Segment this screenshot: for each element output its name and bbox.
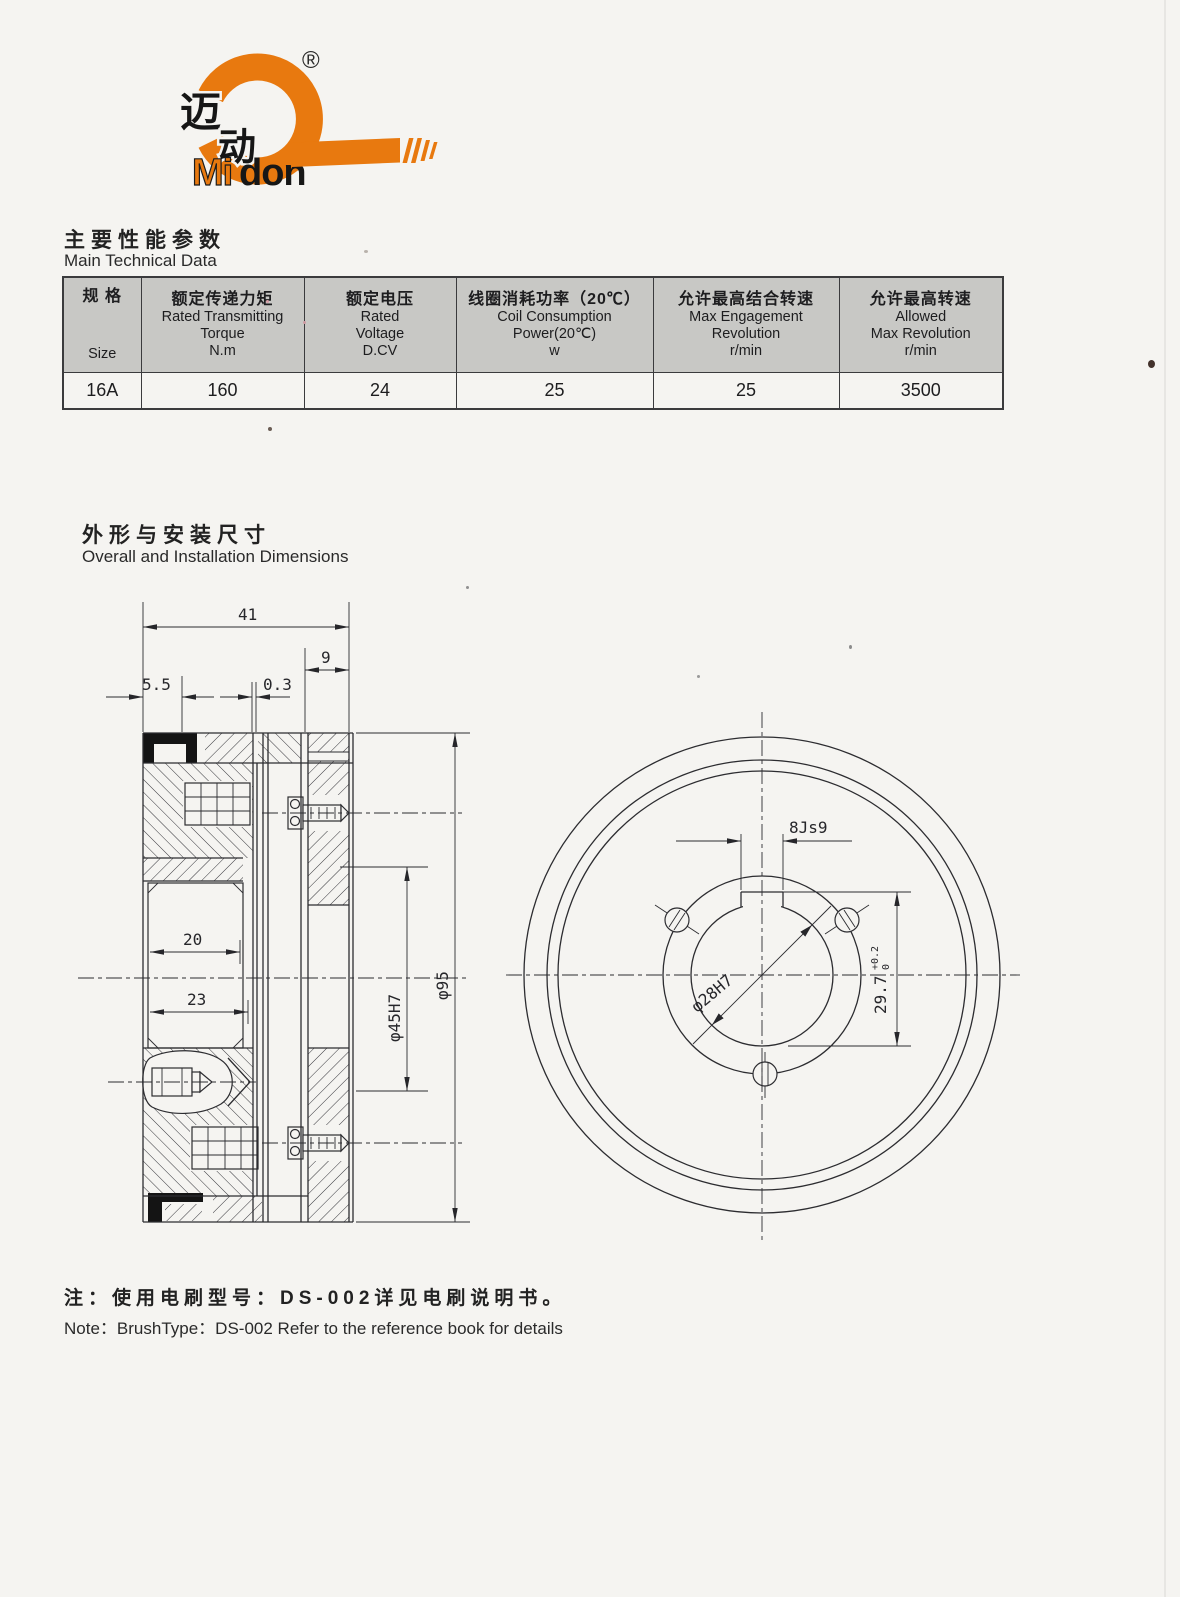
seal-top — [143, 733, 197, 763]
coil-section-bottom — [190, 1125, 260, 1171]
cell-engagement: 25 — [653, 373, 839, 410]
col-power-zh: 线圈消耗功率（20℃） — [459, 290, 651, 309]
set-screw-upper-left — [655, 905, 699, 934]
col-voltage-en1: Rated — [307, 309, 454, 326]
tech-data-title-zh: 主要性能参数 — [64, 224, 226, 254]
scan-speck — [303, 321, 306, 324]
col-voltage-unit: D.CV — [307, 343, 454, 360]
dim-8js9: 8Js9 — [676, 818, 852, 890]
dim-95: φ95 — [356, 733, 470, 1222]
hub-bore-window — [148, 883, 243, 1048]
tech-data-title-en: Main Technical Data — [64, 251, 217, 271]
cross-section-view: 41 9 5.5 0.3 — [78, 602, 470, 1222]
col-header-power: 线圈消耗功率（20℃） Coil Consumption Power(20℃) … — [456, 277, 653, 373]
set-screw-upper-right — [825, 905, 869, 934]
scan-speck — [266, 300, 269, 303]
scan-speck — [849, 645, 852, 649]
cell-torque: 160 — [141, 373, 304, 410]
col-max-zh: 允许最高转速 — [842, 290, 1001, 309]
scan-speck — [1148, 360, 1155, 368]
svg-text:23: 23 — [187, 990, 206, 1009]
set-screw-bottom — [753, 1052, 777, 1098]
dimension-drawings: 41 9 5.5 0.3 — [0, 560, 1180, 1290]
dim-5-5: 5.5 — [106, 675, 214, 732]
col-header-size: 规 格 Size — [63, 277, 141, 373]
dimensions-title-zh: 外形与安装尺寸 — [82, 519, 271, 549]
logo-stripe-icon — [429, 142, 438, 159]
col-power-en1: Coil Consumption — [459, 309, 651, 326]
seal-bottom — [148, 1193, 203, 1222]
col-size-en: Size — [66, 346, 139, 363]
col-header-torque: 额定传递力矩 Rated Transmitting Torque N.m — [141, 277, 304, 373]
logo-bar — [292, 138, 400, 167]
svg-text:29.7: 29.7 — [871, 975, 890, 1014]
midon-logo: ® 迈 动 Mi don — [82, 34, 452, 209]
col-max-unit: r/min — [842, 343, 1001, 360]
logo-stripe-icon — [403, 138, 414, 163]
coil-section-top — [183, 781, 252, 827]
logo-stripe-icon — [411, 138, 422, 163]
logo-chinese-char-1: 迈 — [180, 89, 221, 135]
front-view: 8Js9 29.7 +0.2 0 φ28H7 — [506, 712, 1020, 1240]
note-en: Note：BrushType：DS-002 Refer to the refer… — [64, 1314, 563, 1339]
dim-41: 41 — [143, 602, 349, 732]
col-torque-en1: Rated Transmitting — [144, 309, 302, 326]
col-header-engagement: 允许最高结合转速 Max Engagement Revolution r/min — [653, 277, 839, 373]
col-power-unit: w — [459, 343, 651, 360]
col-torque-en2: Torque — [144, 326, 302, 343]
cell-voltage: 24 — [304, 373, 456, 410]
col-size-zh: 规 格 — [66, 287, 139, 306]
dim-0-3: 0.3 — [220, 675, 292, 732]
scan-speck — [268, 427, 272, 431]
col-power-en2: Power(20℃) — [459, 326, 651, 343]
svg-text:41: 41 — [238, 605, 257, 624]
table-data-row: 16A 160 24 25 25 3500 — [63, 373, 1003, 410]
logo-brand-mi: Mi — [192, 152, 232, 194]
col-engage-en1: Max Engagement — [656, 309, 837, 326]
col-max-en1: Allowed — [842, 309, 1001, 326]
scan-speck — [466, 586, 469, 589]
scan-speck — [364, 250, 368, 253]
col-voltage-zh: 额定电压 — [307, 290, 454, 309]
col-header-max-revolution: 允许最高转速 Allowed Max Revolution r/min — [839, 277, 1003, 373]
svg-text:φ95: φ95 — [433, 971, 452, 1000]
col-voltage-en2: Voltage — [307, 326, 454, 343]
note-zh: 注：使用电刷型号：DS-002详见电刷说明书。 — [64, 1283, 566, 1310]
cell-power: 25 — [456, 373, 653, 410]
svg-text:+0.2: +0.2 — [870, 946, 881, 970]
col-max-en2: Max Revolution — [842, 326, 1001, 343]
cell-size: 16A — [63, 373, 141, 410]
datasheet-page: ® 迈 动 Mi don 主要性能参数 Main Technical Data … — [0, 0, 1180, 1597]
scan-speck — [697, 675, 700, 678]
logo-stripe-icon — [421, 140, 431, 161]
dim-9: 9 — [305, 648, 349, 732]
col-engage-zh: 允许最高结合转速 — [656, 290, 837, 309]
col-engage-en2: Revolution — [656, 326, 837, 343]
col-torque-unit: N.m — [144, 343, 302, 360]
dim-29-7: 29.7 +0.2 0 — [744, 892, 911, 1046]
svg-text:9: 9 — [321, 648, 331, 667]
svg-text:8Js9: 8Js9 — [789, 818, 828, 837]
col-torque-zh: 额定传递力矩 — [144, 290, 302, 309]
table-header-row: 规 格 Size 额定传递力矩 Rated Transmitting Torqu… — [63, 277, 1003, 373]
svg-text:φ28H7: φ28H7 — [687, 971, 736, 1017]
svg-text:0.3: 0.3 — [263, 675, 292, 694]
svg-text:5.5: 5.5 — [142, 675, 171, 694]
registered-mark-icon: ® — [302, 47, 320, 74]
cell-max-revolution: 3500 — [839, 373, 1003, 410]
page-edge-shadow — [1164, 0, 1166, 1597]
technical-data-table: 规 格 Size 额定传递力矩 Rated Transmitting Torqu… — [62, 276, 1004, 410]
col-engage-unit: r/min — [656, 343, 837, 360]
svg-text:20: 20 — [183, 930, 202, 949]
svg-text:φ45H7: φ45H7 — [385, 994, 404, 1042]
col-header-voltage: 额定电压 Rated Voltage D.CV — [304, 277, 456, 373]
svg-text:0: 0 — [881, 964, 892, 970]
